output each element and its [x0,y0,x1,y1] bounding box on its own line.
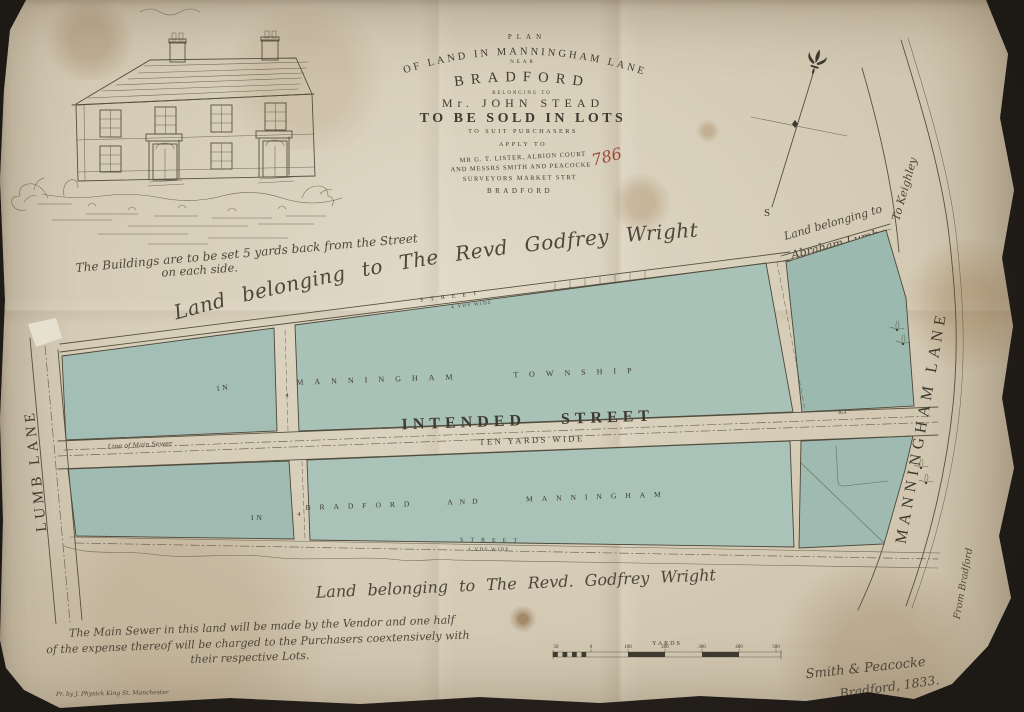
compass-needle [772,74,813,207]
plan-drawing: The Buildings are to be set 5 yards back… [0,0,1024,712]
sewer-line-label: Line of Main Sewer [106,439,173,450]
scale-tick-6: 500 [772,645,780,650]
pencil-scribble [140,9,200,15]
title-sale-line: TO BE SOLD IN LOTS [420,111,627,126]
cross-road-upper-mark: 4 [286,393,289,399]
parcel-upper-left-label: IN [216,382,231,393]
parcel-upper-right [786,230,914,412]
upper-windows [100,103,286,137]
title-agent-line4: BRADFORD [487,187,553,195]
south-street-label: STREET [460,537,524,544]
title-near: NEAR [510,60,536,65]
lumb-lane-label: LUMB LANE [22,408,51,532]
title-block: PLAN OF LAND IN MANNINGHAM LANE NEAR BRA… [402,33,648,195]
scale-tick-1: 0 [590,645,593,650]
fleur-de-lis-icon [803,47,828,77]
garden-shrubs [12,178,334,244]
parcel-upper-left [62,328,277,440]
lower-windows [100,143,232,172]
title-agent-line3: SURVEYORS MARKET STRT [463,174,577,183]
owner-south-label: Land belonging to The Revd. Godfrey Wrig… [314,565,717,602]
measure-mark: 36.4 [838,411,847,416]
parcel-upper-main [295,263,793,431]
title-plan: PLAN [508,33,546,41]
scale-tick-4: 300 [698,645,706,650]
compass-rose: S [751,47,847,219]
cross-road-upper [285,330,288,431]
paper-patch [28,318,62,347]
photo-backdrop: The Buildings are to be set 5 yards back… [0,0,1024,712]
title-suit-line: TO SUIT PURCHASERS [468,128,578,135]
cross-road-lower [302,461,305,539]
parcel-lower-left-label: IN [251,513,265,522]
chimney-left [169,33,186,62]
cross-road-lower-mark: 4 [298,512,301,518]
intended-street-width-label: TEN YARDS WIDE [479,433,585,447]
printer-imprint: Pr. by J. Physick King St. Manchester [55,689,170,698]
south-street-width-label: 4 YDS WIDE [468,548,510,553]
scale-bar: YARDS 50 0 100 200 300 400 500 [553,641,781,659]
map-sheet: The Buildings are to be set 5 yards back… [0,0,1024,712]
chimney-right [261,31,279,60]
title-town-text: BRADFORD [453,69,591,91]
parcel-lower-word2: AND [447,496,485,506]
scale-tick-0: 50 [554,645,560,650]
sewer-note: The Main Sewer in this land will be made… [46,613,470,666]
ground-line [42,192,342,203]
house-illustration [12,31,342,244]
scale-tick-3: 200 [661,645,669,650]
scale-tick-5: 400 [735,645,743,650]
title-apply-line: APPLY TO [499,141,547,148]
sewer-note-line3: their respective Lots. [190,649,309,666]
scale-tick-2: 100 [624,645,632,650]
from-bradford-label: From Bradford [952,547,976,621]
title-owner: Mr. JOHN STEAD [442,96,604,110]
front-door-left [146,134,184,186]
handwritten-number: 786 [590,144,624,170]
title-town-arc: BRADFORD [453,69,591,91]
compass-south-label: S [764,207,770,219]
front-door-right [256,131,294,183]
parcel-lower-left [68,461,294,539]
